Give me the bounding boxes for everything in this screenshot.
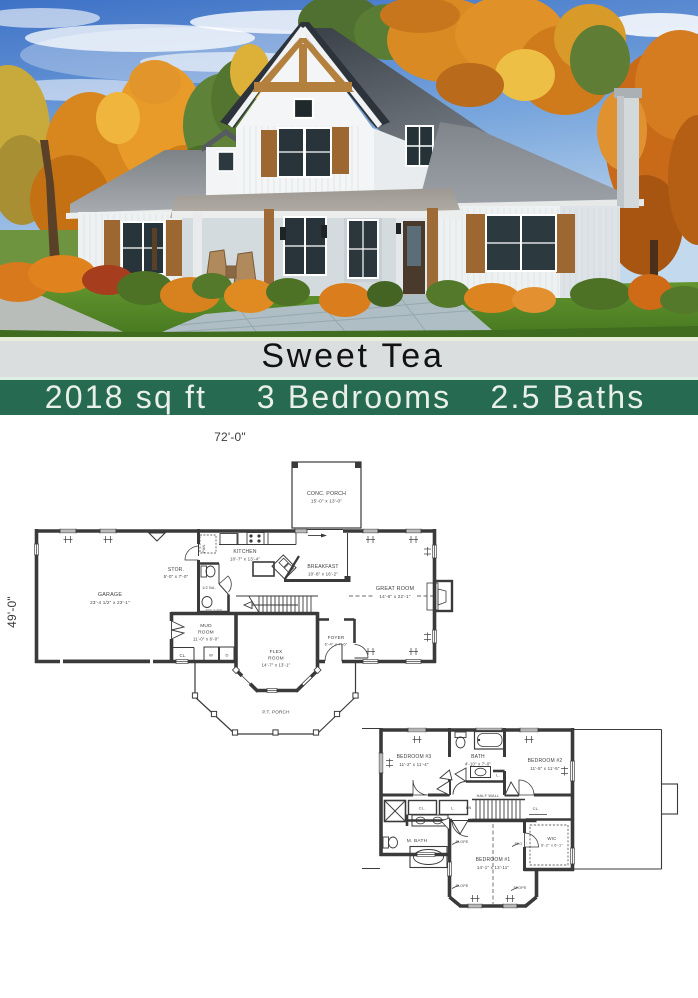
svg-text:23'-4 1/2" x 23'-1": 23'-4 1/2" x 23'-1" — [90, 600, 130, 605]
svg-text:MUD: MUD — [200, 623, 212, 629]
svg-text:14'-6" x 22'-1": 14'-6" x 22'-1" — [379, 594, 410, 599]
svg-text:10'-8" x 16'-2": 10'-8" x 16'-2" — [308, 572, 338, 577]
svg-text:FLEX: FLEX — [270, 649, 283, 655]
svg-text:D: D — [225, 653, 228, 658]
svg-text:4'-10" x 7'-0": 4'-10" x 7'-0" — [465, 762, 492, 767]
svg-text:BUILT-INS: BUILT-INS — [206, 609, 223, 613]
svg-text:6'-2" x 6'-1": 6'-2" x 6'-1" — [541, 844, 563, 848]
svg-text:BATH: BATH — [471, 754, 485, 760]
svg-text:1/2 BA.: 1/2 BA. — [202, 586, 216, 590]
svg-text:KITCHEN: KITCHEN — [233, 549, 257, 555]
svg-text:ROOM: ROOM — [268, 656, 284, 662]
svg-text:GREAT ROOM: GREAT ROOM — [376, 586, 415, 592]
svg-text:W: W — [209, 653, 213, 658]
svg-text:72'-0": 72'-0" — [214, 430, 246, 444]
svg-text:CONC. PORCH: CONC. PORCH — [307, 491, 346, 497]
svg-text:STOR.: STOR. — [168, 567, 184, 573]
svg-text:49'-0": 49'-0" — [5, 596, 19, 628]
svg-text:P.T. PORCH: P.T. PORCH — [262, 710, 289, 715]
svg-text:CL.: CL. — [179, 653, 186, 658]
svg-text:PAN.: PAN. — [202, 543, 206, 552]
svg-text:HALF WALL: HALF WALL — [477, 794, 500, 798]
svg-text:14'-7" x 13'-1": 14'-7" x 13'-1" — [262, 663, 291, 668]
svg-text:L.: L. — [496, 774, 500, 778]
svg-text:BEDROOM #2: BEDROOM #2 — [528, 758, 563, 764]
svg-text:L.: L. — [451, 806, 455, 811]
svg-text:11'-2" x 11'-4": 11'-2" x 11'-4" — [399, 762, 429, 767]
svg-text:M. BATH: M. BATH — [407, 838, 428, 844]
svg-text:GARAGE: GARAGE — [98, 592, 122, 598]
svg-text:CL.: CL. — [533, 806, 540, 811]
svg-text:10'-7" x 13'-4": 10'-7" x 13'-4" — [230, 557, 260, 562]
svg-text:FOYER: FOYER — [328, 635, 345, 640]
svg-text:15'-0" x 13'-0": 15'-0" x 13'-0" — [311, 499, 342, 504]
svg-text:11'-0" x 6'-0": 11'-0" x 6'-0" — [193, 637, 219, 642]
svg-text:CL.: CL. — [419, 806, 426, 811]
svg-text:ROOM: ROOM — [198, 630, 214, 636]
svg-text:BEDROOM #3: BEDROOM #3 — [397, 754, 432, 760]
svg-text:DN: DN — [466, 806, 472, 810]
svg-text:5'-0" x 7'-0": 5'-0" x 7'-0" — [164, 574, 189, 579]
svg-text:WIC: WIC — [547, 836, 556, 841]
svg-text:11'-5" x 11'-5": 11'-5" x 11'-5" — [530, 766, 560, 771]
svg-text:BREAKFAST: BREAKFAST — [307, 564, 338, 570]
svg-text:6'-4" x 7'-6": 6'-4" x 7'-6" — [325, 642, 348, 647]
